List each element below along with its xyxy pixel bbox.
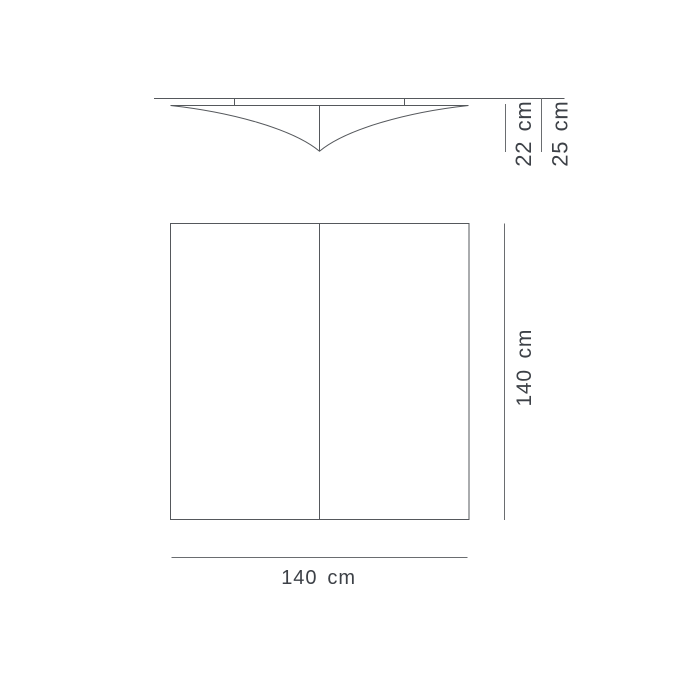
svg-text:22 cm: 22 cm	[511, 100, 536, 166]
svg-text:140 cm: 140 cm	[513, 329, 536, 407]
svg-text:25 cm: 25 cm	[547, 100, 572, 166]
svg-text:140 cm: 140 cm	[281, 567, 356, 589]
